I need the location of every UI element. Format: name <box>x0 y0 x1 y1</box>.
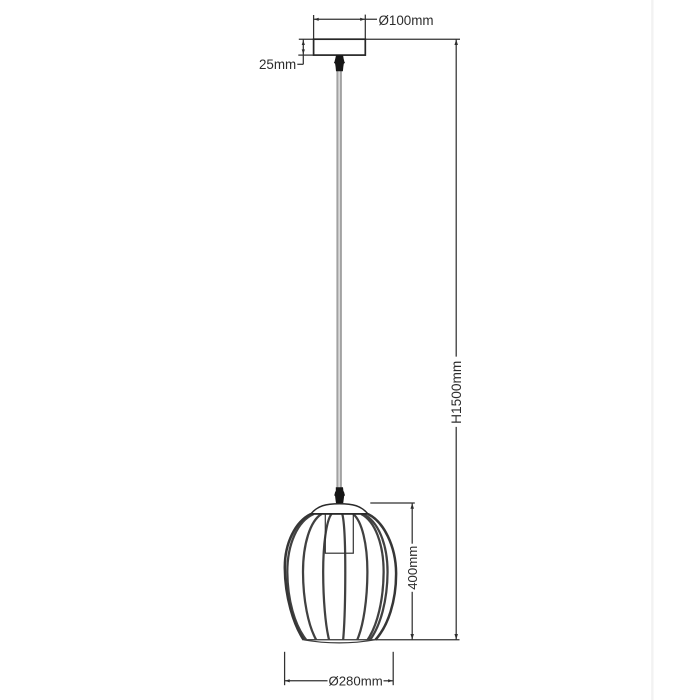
svg-text:Ø100mm: Ø100mm <box>379 13 434 28</box>
svg-text:400mm: 400mm <box>405 546 420 590</box>
svg-text:H1500mm: H1500mm <box>449 361 464 424</box>
svg-text:Ø280mm: Ø280mm <box>328 674 382 689</box>
svg-text:25mm: 25mm <box>259 57 296 72</box>
